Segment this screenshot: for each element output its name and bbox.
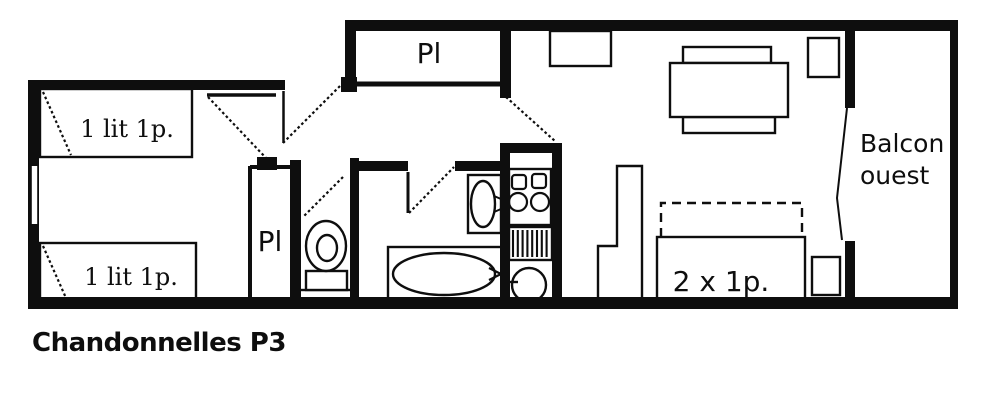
balcony-door-line <box>837 108 847 240</box>
stove <box>509 169 551 225</box>
bathroom-wall-north-west <box>350 161 408 171</box>
bed-top-label: 1 lit 1p. <box>80 115 174 143</box>
bedroom-door-leaf <box>208 97 266 158</box>
bathroom-wall-north-east <box>455 161 501 171</box>
balcony-wall-upper <box>845 31 855 108</box>
sofa-bed-label: 2 x 1p. <box>673 265 770 298</box>
wc-fixtures <box>299 221 352 300</box>
balcony-label-line1: Balcon <box>860 129 944 158</box>
dining-bench-top <box>683 47 771 63</box>
hall-closet-label: Pl <box>417 37 442 70</box>
page-title: Chandonnelles P3 <box>32 328 286 358</box>
bathroom-fixtures <box>388 175 505 300</box>
floor-plan: 1 lit 1p. 1 lit 1p. Pl Pl 2 x 1p. Balcon… <box>0 0 1000 409</box>
washbasin-bowl <box>471 181 495 227</box>
sideboard <box>550 31 611 66</box>
balcony-wall-east <box>950 20 958 309</box>
bed-bottom-label: 1 lit 1p. <box>84 263 178 291</box>
kitchen-sink <box>512 268 546 302</box>
bedroom-window <box>31 166 38 224</box>
living-room-door-leaf <box>506 97 556 142</box>
side-table-bottom <box>812 257 840 295</box>
hall-closet-wall-east <box>500 20 511 98</box>
bedroom-closet-label: Pl <box>258 225 283 258</box>
closet-wc-divider-wall <box>290 160 301 304</box>
balcony-label-line2: ouest <box>860 161 930 190</box>
floor-plan-drawing: 1 lit 1p. 1 lit 1p. Pl Pl 2 x 1p. Balcon… <box>0 0 1000 409</box>
kitchen-wall-east <box>552 143 562 304</box>
exterior-wall-south <box>28 297 958 309</box>
toilet-tank <box>306 271 347 290</box>
living-room-fixtures <box>550 31 840 300</box>
bathtub-basin <box>393 253 495 295</box>
kitchen-fixtures <box>508 169 552 302</box>
wc-door-leaf <box>304 177 343 216</box>
entry-door-hinge-stub <box>341 77 357 92</box>
toilet-bowl-inner <box>317 235 337 261</box>
side-table-top <box>808 38 839 77</box>
wc-wall-east <box>350 158 359 304</box>
flue-protrusion <box>598 166 642 300</box>
window-gap <box>31 166 38 224</box>
exterior-wall-north <box>345 20 958 31</box>
bedroom-wall-north <box>28 80 285 90</box>
sofa-bed-pullout-dashed <box>661 203 802 237</box>
dining-bench-bottom <box>683 117 775 133</box>
dining-table <box>670 63 788 117</box>
kitchen-wall-west <box>500 143 510 304</box>
entry-door-swing <box>283 85 341 143</box>
bathroom-door-leaf <box>409 167 454 213</box>
balcony-wall-lower <box>845 241 855 302</box>
